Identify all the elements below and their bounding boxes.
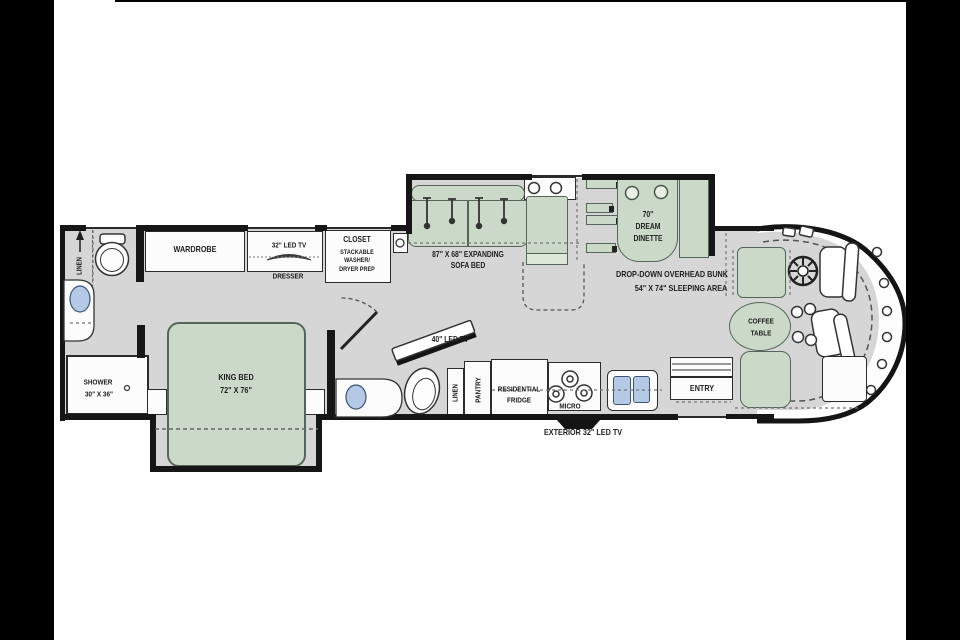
dinette-label: 70" (643, 211, 654, 219)
nightstand-right (305, 389, 325, 415)
coffee-table (729, 302, 791, 351)
pantry-label: PANTRY (474, 377, 482, 403)
entry-door-window (613, 376, 631, 405)
tv40-label: 40" LED TV (432, 336, 469, 344)
dinette-arm-slat (586, 203, 613, 213)
lounge-chair (737, 247, 786, 298)
dinette-partition-wall (709, 174, 715, 256)
sofa-label: SOFA BED (451, 262, 486, 270)
sofa-chaise-endcap (526, 253, 568, 265)
steering-wheel (789, 257, 817, 285)
slat-pin (609, 206, 614, 212)
wall-segment (322, 414, 678, 420)
dinette-label: DREAM (636, 223, 661, 231)
exterior-tv-label: EXTERIOR 32" LED TV (544, 428, 622, 437)
wall-segment (709, 226, 774, 231)
letterbox-right (906, 0, 960, 640)
slat-pin (612, 246, 617, 252)
dresser-label: DRESSER (273, 272, 304, 280)
cab-front-area (0, 0, 960, 640)
entry-label: ENTRY (690, 384, 714, 393)
bedroom-wall-right (327, 330, 335, 418)
bed-slideout-wall (316, 414, 322, 472)
sofa-label: 87" X 68" EXPANDING (432, 251, 504, 259)
entry-door-sill (678, 416, 726, 418)
wall-segment (60, 414, 154, 420)
fridge-label: RESIDENTIAL (498, 385, 541, 393)
dinette-table (617, 178, 678, 262)
wall-segment (315, 225, 327, 231)
king-bed-label: 72" X 76" (220, 386, 252, 395)
sofa-chaise-section (526, 196, 568, 255)
bunk-label: 54" X 74" SLEEPING AREA (635, 284, 728, 293)
bed-slideout-wall (150, 466, 322, 472)
shower-label: 30" X 36" (85, 390, 113, 398)
rv-floorplan-page: { "colors": { "furniture_green": "#cbdac… (0, 0, 960, 640)
cab-console-box (822, 356, 867, 402)
dinette-arm-slat (586, 215, 620, 225)
sofa-cushion (468, 200, 528, 247)
dinette-label: DINETTE (633, 235, 662, 243)
closet-label: CLOSET (343, 236, 371, 244)
dresser-tv-cabinet (247, 231, 323, 272)
closet-label: DRYER PREP (339, 267, 375, 274)
closet-label: STACKABLE (340, 250, 374, 257)
coffee-table-label: TABLE (751, 329, 772, 337)
kitchen-slideout-wall (582, 174, 715, 180)
rear-wall (60, 225, 65, 421)
shower-label: SHOWER (84, 378, 113, 386)
lounge-chair (740, 351, 791, 408)
galley-linen-label: LINEN (453, 384, 460, 402)
nightstand-left (147, 389, 167, 415)
kitchen-slideout-wall (406, 174, 532, 180)
fridge-label: FRIDGE (507, 396, 531, 404)
kitchen-slideout-wall (406, 174, 412, 234)
toilet-partition-wall (136, 227, 144, 282)
wardrobe-label: WARDROBE (174, 245, 217, 254)
entry-door-window (633, 376, 650, 403)
tv32-label: 32" LED TV (272, 241, 307, 249)
coffee-table-label: COFFEE (748, 317, 774, 325)
letterbox-left (0, 0, 54, 640)
bedroom-wall-left (137, 325, 145, 358)
rear-linen-label: LINEN (77, 257, 84, 275)
dinette-bench (679, 177, 709, 258)
king-bed-label: KING BED (218, 373, 253, 382)
entry-step (670, 357, 733, 377)
letterbox-top-line (115, 0, 906, 2)
wall-segment (726, 414, 774, 419)
rear-linen-closet (67, 230, 93, 322)
bunk-label: DROP-DOWN OVERHEAD BUNK (616, 270, 728, 279)
dinette-arm-slat (586, 243, 616, 253)
micro-label: MICRO (559, 402, 580, 410)
speaker-box (393, 233, 408, 253)
kitchen-window-line (532, 175, 582, 177)
closet-label: WASHER/ (344, 258, 370, 265)
bed-slideout-wall (150, 414, 156, 472)
wall-segment (136, 225, 248, 231)
dinette-arm-slat (586, 179, 620, 189)
sofa-cushion (408, 200, 468, 247)
driver-seat (820, 243, 859, 302)
